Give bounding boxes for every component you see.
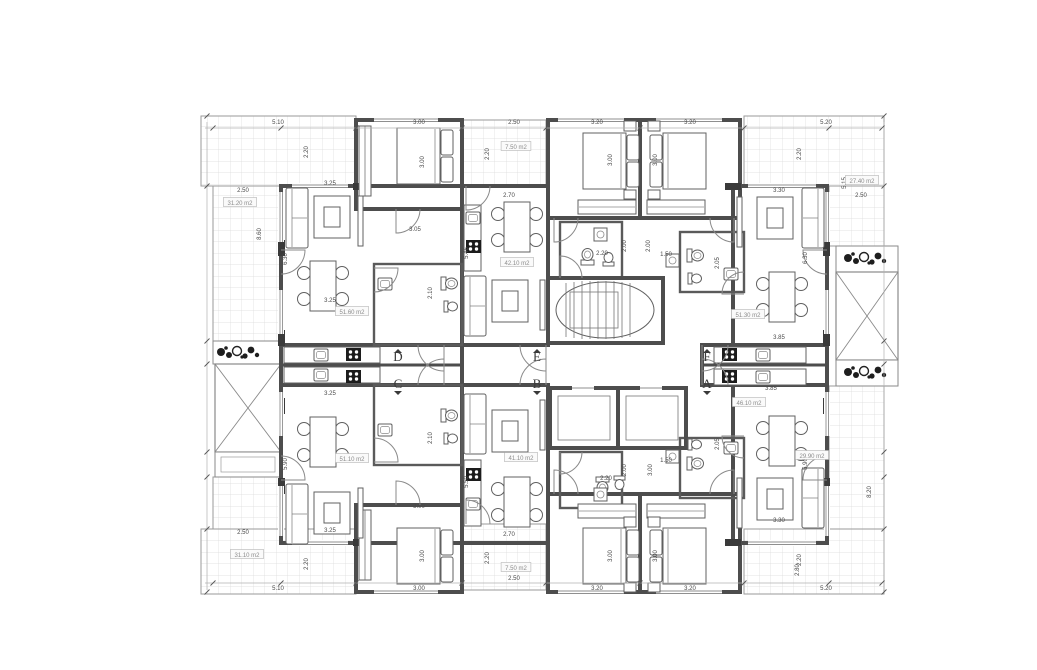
sofa-icon xyxy=(286,484,308,544)
area-label: 42.10 m2 xyxy=(504,261,530,267)
kitchen-sink-icon xyxy=(756,371,770,383)
sofa-icon xyxy=(286,188,308,248)
dimension-label: 3.00 xyxy=(653,154,659,166)
dimension-label: 2.20 xyxy=(797,148,803,160)
tv-icon xyxy=(358,488,363,538)
sofa-icon xyxy=(464,394,486,454)
dimension-label: 1.50 xyxy=(660,458,672,464)
dimension-label: 3.25 xyxy=(324,528,336,534)
dimension-label: 5.20 xyxy=(820,120,832,126)
dimension-label: 3.25 xyxy=(324,181,336,187)
stove-icon xyxy=(346,348,361,361)
area-label: 31.10 m2 xyxy=(234,553,260,559)
dimension-label: 2.20 xyxy=(596,251,608,257)
nightstand-icon xyxy=(624,517,636,527)
unit-letter-b: B xyxy=(533,376,542,391)
dimension-label: 2.50 xyxy=(508,120,520,126)
dimension-label: 5.10 xyxy=(272,586,284,592)
area-label: 41.10 m2 xyxy=(508,456,534,462)
nightstand-icon xyxy=(624,583,636,592)
wardrobe-icon xyxy=(647,504,705,518)
dimension-label: 2.20 xyxy=(600,476,612,482)
dimension-label: 2.50 xyxy=(237,188,249,194)
kitchen-sink-icon xyxy=(314,369,328,381)
dimension-label: 8.20 xyxy=(867,486,873,498)
direction-triangle-icon xyxy=(394,391,402,395)
dimension-label: 1.50 xyxy=(660,252,672,258)
nightstand-icon xyxy=(648,517,660,527)
area-label: 51.60 m2 xyxy=(339,310,365,316)
sofa-icon xyxy=(802,468,824,528)
room-bath-b xyxy=(560,452,622,508)
toilet-icon xyxy=(581,249,594,266)
bath-sink-icon xyxy=(378,424,392,436)
floor-plan-page: 5.103.002.503.203.205.205.103.002.503.20… xyxy=(0,0,1037,670)
wardrobe-icon xyxy=(578,200,636,214)
dimension-label: 3.85 xyxy=(773,335,785,341)
kitchen-sink-icon xyxy=(314,349,328,361)
area-label: 29.90 m2 xyxy=(799,454,825,460)
toilet-icon xyxy=(441,277,458,290)
tv-icon xyxy=(737,478,742,528)
door-arc xyxy=(418,359,444,385)
dimension-label: 2.05 xyxy=(715,438,721,450)
dimension-label: 3.85 xyxy=(765,386,777,392)
bed-icon xyxy=(397,128,453,184)
dimension-label: 3.20 xyxy=(591,120,603,126)
bidet-icon xyxy=(444,301,458,312)
area-label: 51.30 m2 xyxy=(735,313,761,319)
dimension-label: 2.70 xyxy=(503,193,515,199)
dimension-label: 2.80 xyxy=(795,564,801,576)
area-label: 31.20 m2 xyxy=(227,201,253,207)
dimension-label: 2.05 xyxy=(715,257,721,269)
dimension-label: 3.00 xyxy=(653,550,659,562)
dimension-label: 2.20 xyxy=(304,558,310,570)
terrace-left-strip xyxy=(213,186,281,341)
unit-letter-a: A xyxy=(702,376,712,391)
wardrobe-icon xyxy=(647,200,705,214)
dimension-label: 3.00 xyxy=(413,120,425,126)
dimension-label: 3.00 xyxy=(420,156,426,168)
dining-table-icon xyxy=(492,477,543,527)
bath-sink-icon xyxy=(378,278,392,290)
dining-table-icon xyxy=(298,261,349,311)
door-arc xyxy=(560,452,582,474)
sofa-icon xyxy=(802,188,824,248)
terrace-right-strip xyxy=(829,386,884,529)
dimension-label: 2.00 xyxy=(622,240,628,252)
dimension-label: 5.50 xyxy=(464,476,470,488)
dimension-label: 3.00 xyxy=(413,504,425,510)
toilet-icon xyxy=(687,249,704,262)
dimension-label: 3.30 xyxy=(773,188,785,194)
dining-table-icon xyxy=(492,202,543,252)
area-label: 51.10 m2 xyxy=(339,457,365,463)
elevator-cab-1 xyxy=(558,396,610,440)
washing-machine-icon xyxy=(594,228,607,241)
dimension-label: 2.10 xyxy=(428,432,434,444)
tv-cabinet-icon xyxy=(757,197,793,239)
door-arc xyxy=(374,438,398,462)
unit-letter-c: C xyxy=(394,376,403,391)
planter-box-left-lower xyxy=(215,452,281,477)
dimension-label: 3.05 xyxy=(409,227,421,233)
door-arc xyxy=(418,345,444,371)
dimension-label: 3.00 xyxy=(413,586,425,592)
dimension-label: 6.30 xyxy=(283,253,289,265)
stair-icon xyxy=(556,281,654,339)
dimension-label: 3.20 xyxy=(684,120,696,126)
wardrobe-icon xyxy=(578,504,636,518)
nightstand-icon xyxy=(648,190,660,199)
dimension-label: 3.00 xyxy=(608,154,614,166)
toilet-icon xyxy=(441,409,458,422)
bidet-icon xyxy=(688,273,702,284)
area-label: 27.40 m2 xyxy=(849,179,875,185)
dimension-label: 2.20 xyxy=(485,148,491,160)
tv-cabinet-icon xyxy=(314,196,350,238)
core xyxy=(548,278,686,448)
tv-icon xyxy=(540,280,545,330)
dimension-label: 3.00 xyxy=(420,550,426,562)
dimension-label: 2.20 xyxy=(304,146,310,158)
dimension-label: 2.00 xyxy=(622,464,628,476)
dimension-label: 6.30 xyxy=(803,252,809,264)
dimension-label: 2.50 xyxy=(508,576,520,582)
door-arc xyxy=(560,256,582,278)
door-arc xyxy=(710,218,734,242)
nightstand-icon xyxy=(624,190,636,199)
terrace-left-strip-lower xyxy=(213,477,281,529)
balcony-unit-e xyxy=(462,120,546,186)
door-arc xyxy=(710,470,734,494)
tv-cabinet-icon xyxy=(492,280,528,322)
terrace-top-left xyxy=(201,116,356,186)
area-label: 7.50 m2 xyxy=(505,145,527,151)
washing-machine-icon xyxy=(594,488,607,501)
tv-icon xyxy=(358,196,363,246)
bidet-icon xyxy=(444,433,458,444)
dimension-label: 2.70 xyxy=(503,532,515,538)
area-label: 7.50 m2 xyxy=(505,566,527,572)
direction-triangle-icon xyxy=(533,391,541,395)
direction-triangle-icon xyxy=(703,391,711,395)
nightstand-icon xyxy=(648,583,660,592)
area-label: 46.10 m2 xyxy=(736,401,762,407)
bidet-icon xyxy=(688,439,702,450)
dimension-label: 2.50 xyxy=(237,530,249,536)
sofa-icon xyxy=(464,276,486,336)
terrace-bottom-right xyxy=(744,529,884,594)
elevator-cab-2 xyxy=(626,396,678,440)
dimension-label: 3.25 xyxy=(324,298,336,304)
kitchen-counter-c xyxy=(284,367,380,383)
tv-cabinet-icon xyxy=(492,410,528,452)
nightstand-icon xyxy=(648,121,660,131)
kitchen-counter-d xyxy=(284,347,380,363)
door-arc xyxy=(554,470,578,494)
dimension-label: 3.30 xyxy=(773,518,785,524)
stove-icon xyxy=(346,370,361,383)
nightstand-icon xyxy=(624,121,636,131)
dimension-label: 2.20 xyxy=(485,552,491,564)
kitchen-sink-icon xyxy=(756,349,770,361)
dimension-label: 5.10 xyxy=(272,120,284,126)
dimension-label: 5.20 xyxy=(820,586,832,592)
terrace-bottom-left xyxy=(201,529,356,594)
tv-icon xyxy=(737,197,742,247)
dimension-label: 2.50 xyxy=(855,193,867,199)
dimension-label: 5.90 xyxy=(283,458,289,470)
tv-cabinet-icon xyxy=(757,478,793,520)
dimension-label: 3.00 xyxy=(608,550,614,562)
kitchen-sink-icon xyxy=(466,212,480,224)
dimension-label: 8.60 xyxy=(257,228,263,240)
dimension-label: 3.20 xyxy=(684,586,696,592)
dimension-label: 2.00 xyxy=(646,240,652,252)
dimension-label: 3.20 xyxy=(591,586,603,592)
bidet-icon xyxy=(614,476,625,490)
dimension-label: 2.10 xyxy=(428,287,434,299)
dimension-label: 3.25 xyxy=(324,391,336,397)
dimension-label: 2.20 xyxy=(797,554,803,566)
toilet-icon xyxy=(687,457,704,470)
dimension-label: 5.46 xyxy=(464,247,470,259)
elevators xyxy=(550,385,686,448)
floor-plan-drawing: 5.103.002.503.203.205.205.103.002.503.20… xyxy=(0,0,1037,670)
dimension-label: 3.00 xyxy=(648,464,654,476)
tv-icon xyxy=(540,400,545,450)
door-arc xyxy=(396,481,420,505)
